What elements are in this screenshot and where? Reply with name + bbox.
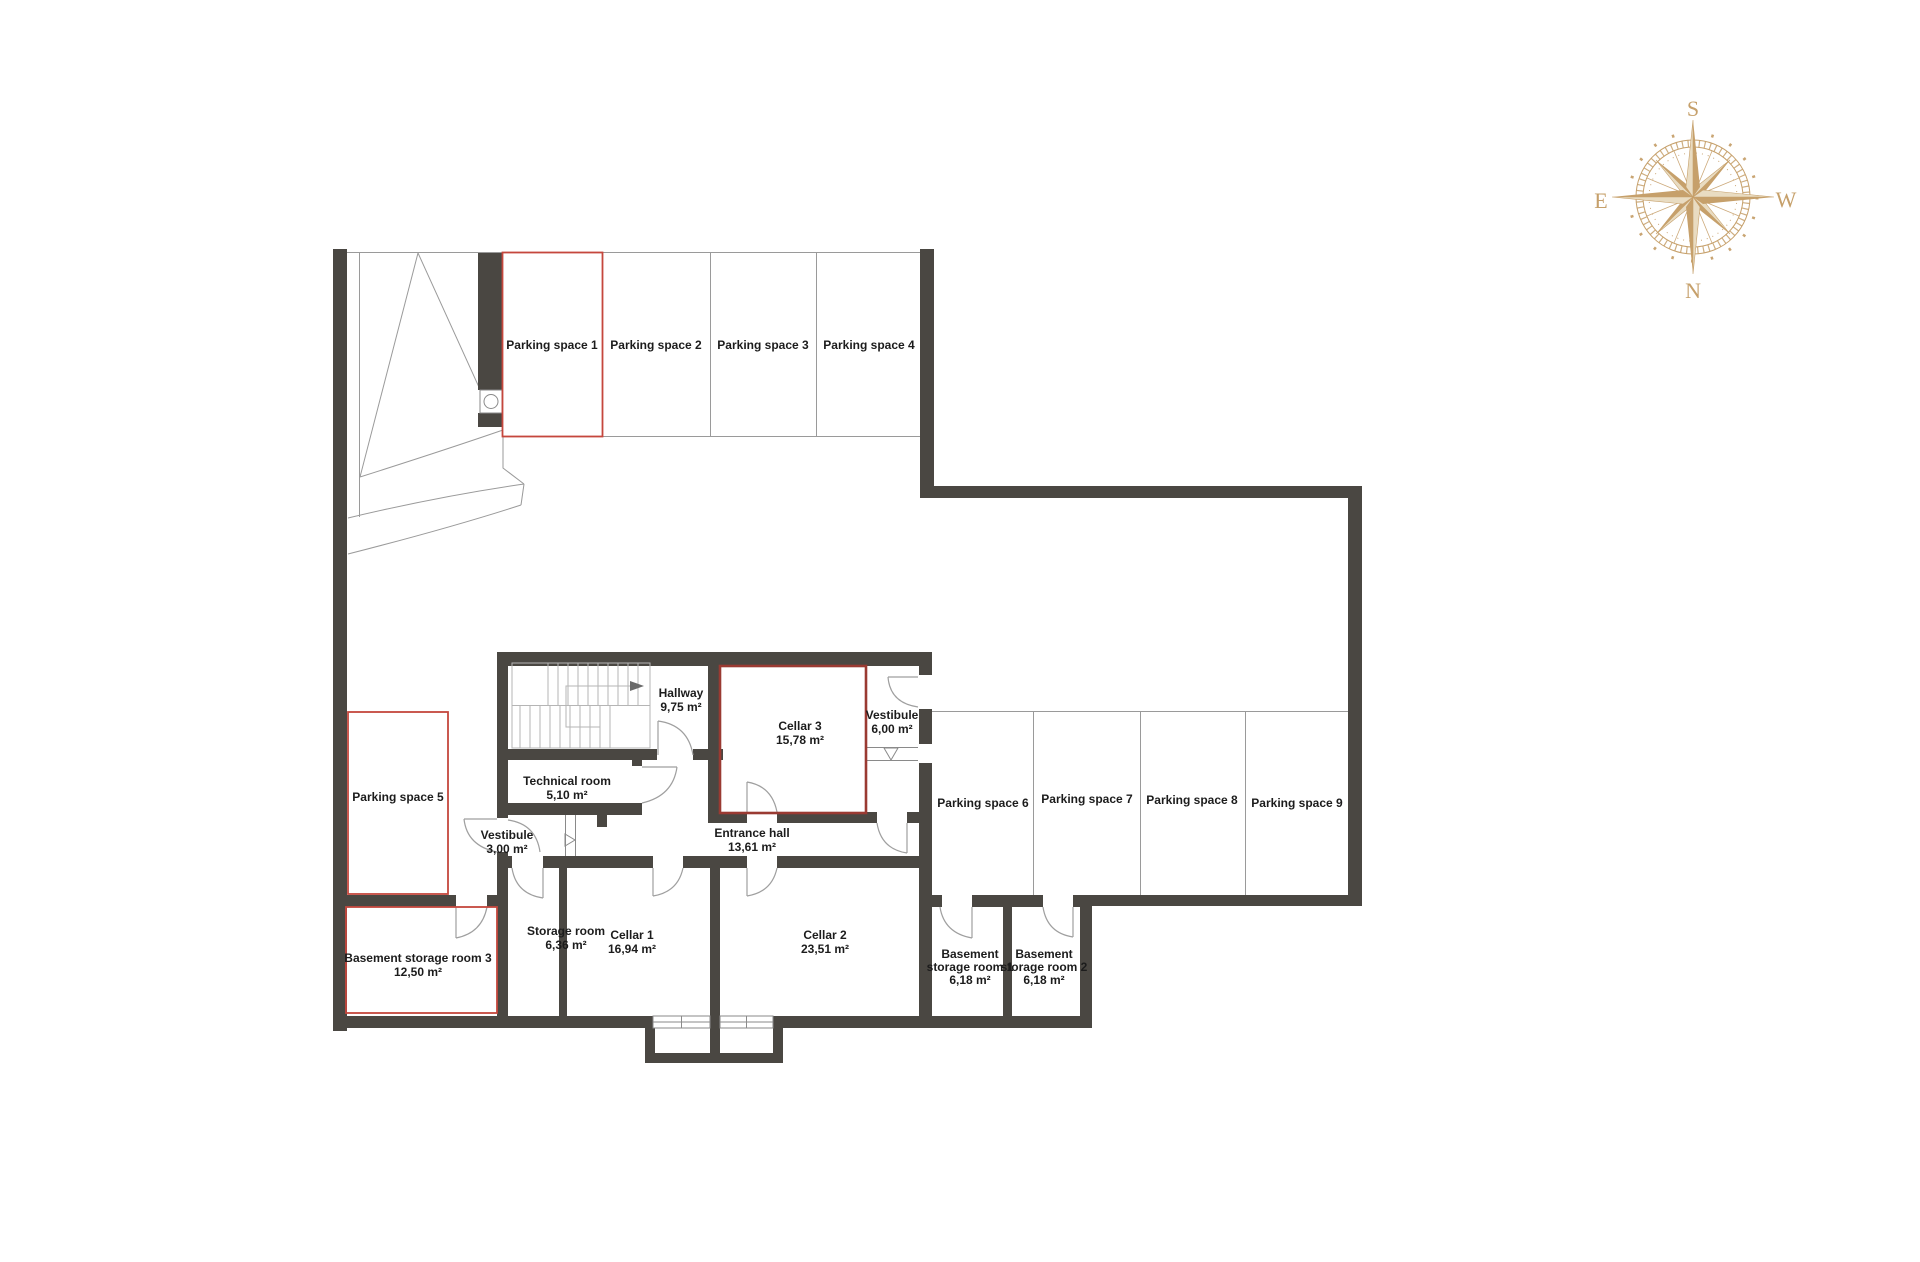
- room-label-bstorage-1a: Basement: [941, 947, 998, 961]
- room-label-storage: Storage room: [527, 924, 605, 938]
- room-label-bstorage-2a: Basement: [1015, 947, 1072, 961]
- room-area-bstorage-3: 12,50 m²: [394, 965, 442, 979]
- floor-plan-drawing: Parking space 1 Parking space 2 Parking …: [0, 0, 1920, 1262]
- compass-label-north: N: [1685, 278, 1701, 303]
- room-label-technical: Technical room: [523, 774, 611, 788]
- room-label-parking-1: Parking space 1: [506, 338, 598, 352]
- room-area-vestibule-3: 3,00 m²: [486, 842, 527, 856]
- column-detail: [480, 390, 502, 413]
- room-area-cellar-2: 23,51 m²: [801, 942, 849, 956]
- room-label-bstorage-3: Basement storage room 3: [344, 951, 492, 965]
- room-area-storage: 6,36 m²: [545, 938, 586, 952]
- step-symbol-2: [565, 834, 575, 846]
- staircase: [512, 663, 650, 748]
- room-area-cellar-3: 15,78 m²: [776, 733, 824, 747]
- room-label-parking-3: Parking space 3: [717, 338, 809, 352]
- step-symbol: [884, 748, 898, 760]
- room-area-bstorage-1: 6,18 m²: [949, 973, 990, 987]
- room-area-vestibule-6: 6,00 m²: [871, 722, 912, 736]
- room-label-parking-7: Parking space 7: [1041, 792, 1133, 806]
- room-label-vestibule-3: Vestibule: [481, 828, 534, 842]
- compass-rose-icon: S W N E: [1594, 96, 1796, 303]
- room-label-entrance: Entrance hall: [714, 826, 789, 840]
- room-label-parking-9: Parking space 9: [1251, 796, 1343, 810]
- room-area-cellar-1: 16,94 m²: [608, 942, 656, 956]
- compass-label-south: S: [1687, 96, 1699, 121]
- room-label-parking-8: Parking space 8: [1146, 793, 1238, 807]
- stair-direction-arrow: [630, 681, 644, 691]
- room-area-bstorage-2: 6,18 m²: [1023, 973, 1064, 987]
- room-label-parking-6: Parking space 6: [937, 796, 1029, 810]
- room-label-parking-2: Parking space 2: [610, 338, 702, 352]
- room-label-cellar-1: Cellar 1: [610, 928, 654, 942]
- room-area-technical: 5,10 m²: [546, 788, 587, 802]
- floor-plan-page: Parking space 1 Parking space 2 Parking …: [0, 0, 1920, 1262]
- compass-label-east: E: [1594, 188, 1607, 213]
- walls: [333, 249, 1362, 1063]
- room-label-parking-5: Parking space 5: [352, 790, 444, 804]
- compass-label-west: W: [1776, 187, 1797, 212]
- room-label-hallway: Hallway: [659, 686, 704, 700]
- room-label-parking-4: Parking space 4: [823, 338, 915, 352]
- room-label-vestibule-6: Vestibule: [866, 708, 919, 722]
- room-label-cellar-2: Cellar 2: [803, 928, 847, 942]
- room-area-entrance: 13,61 m²: [728, 840, 776, 854]
- room-label-bstorage-2b: storage room 2: [1001, 960, 1088, 974]
- room-area-hallway: 9,75 m²: [660, 700, 701, 714]
- room-label-cellar-3: Cellar 3: [778, 719, 822, 733]
